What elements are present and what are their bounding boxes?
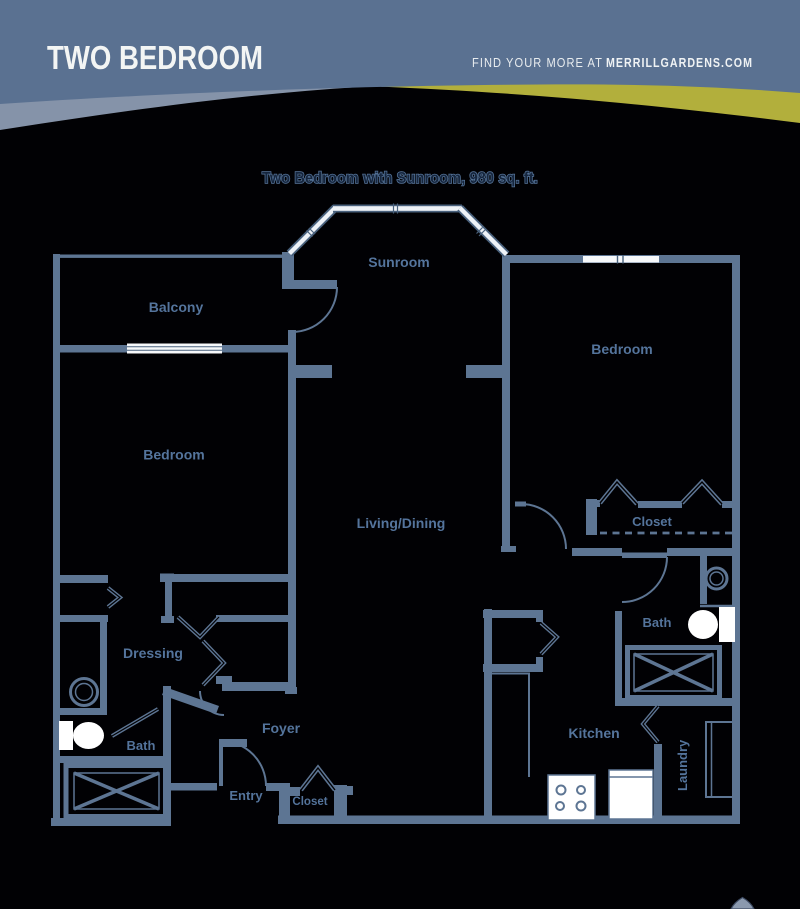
svg-text:Bedroom: Bedroom	[143, 447, 204, 463]
svg-text:FIND YOUR MORE AT: FIND YOUR MORE AT	[472, 56, 603, 70]
svg-text:TWO BEDROOM: TWO BEDROOM	[47, 39, 263, 76]
svg-text:Balcony: Balcony	[149, 299, 204, 315]
svg-text:Closet: Closet	[292, 796, 327, 808]
svg-text:Bath: Bath	[643, 615, 672, 630]
svg-text:Bath: Bath	[127, 738, 156, 753]
svg-text:Bedroom: Bedroom	[591, 341, 652, 357]
svg-text:Sunroom: Sunroom	[368, 254, 429, 270]
svg-text:Laundry: Laundry	[675, 739, 690, 791]
svg-text:Living/Dining: Living/Dining	[357, 515, 446, 531]
svg-text:Closet: Closet	[632, 514, 672, 529]
svg-text:Two Bedroom with Sunroom, 980: Two Bedroom with Sunroom, 980 sq. ft.	[262, 170, 538, 187]
svg-text:Dressing: Dressing	[123, 645, 183, 661]
svg-text:Entry: Entry	[229, 788, 263, 803]
svg-text:Kitchen: Kitchen	[568, 725, 619, 741]
svg-text:Foyer: Foyer	[262, 720, 301, 736]
svg-text:MERRILLGARDENS.COM: MERRILLGARDENS.COM	[606, 56, 753, 70]
